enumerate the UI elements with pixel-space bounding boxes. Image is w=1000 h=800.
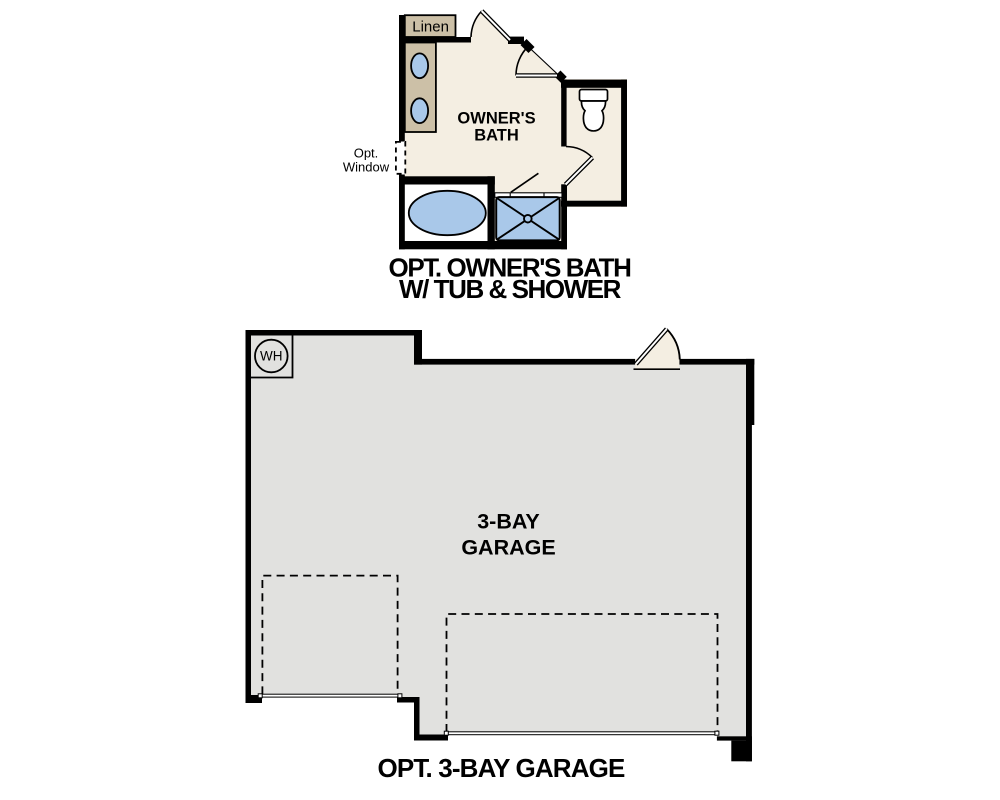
svg-text:WH: WH [260, 349, 283, 364]
svg-text:OWNER'S: OWNER'S [457, 110, 535, 128]
svg-text:BATH: BATH [474, 127, 519, 145]
svg-text:3-BAY: 3-BAY [477, 510, 540, 534]
svg-text:Window: Window [343, 160, 390, 175]
svg-text:GARAGE: GARAGE [461, 536, 555, 560]
svg-text:OPT. 3-BAY GARAGE: OPT. 3-BAY GARAGE [377, 753, 625, 783]
svg-text:Opt.: Opt. [354, 146, 379, 161]
svg-text:W/ TUB & SHOWER: W/ TUB & SHOWER [399, 274, 622, 304]
svg-text:Linen: Linen [412, 18, 449, 35]
